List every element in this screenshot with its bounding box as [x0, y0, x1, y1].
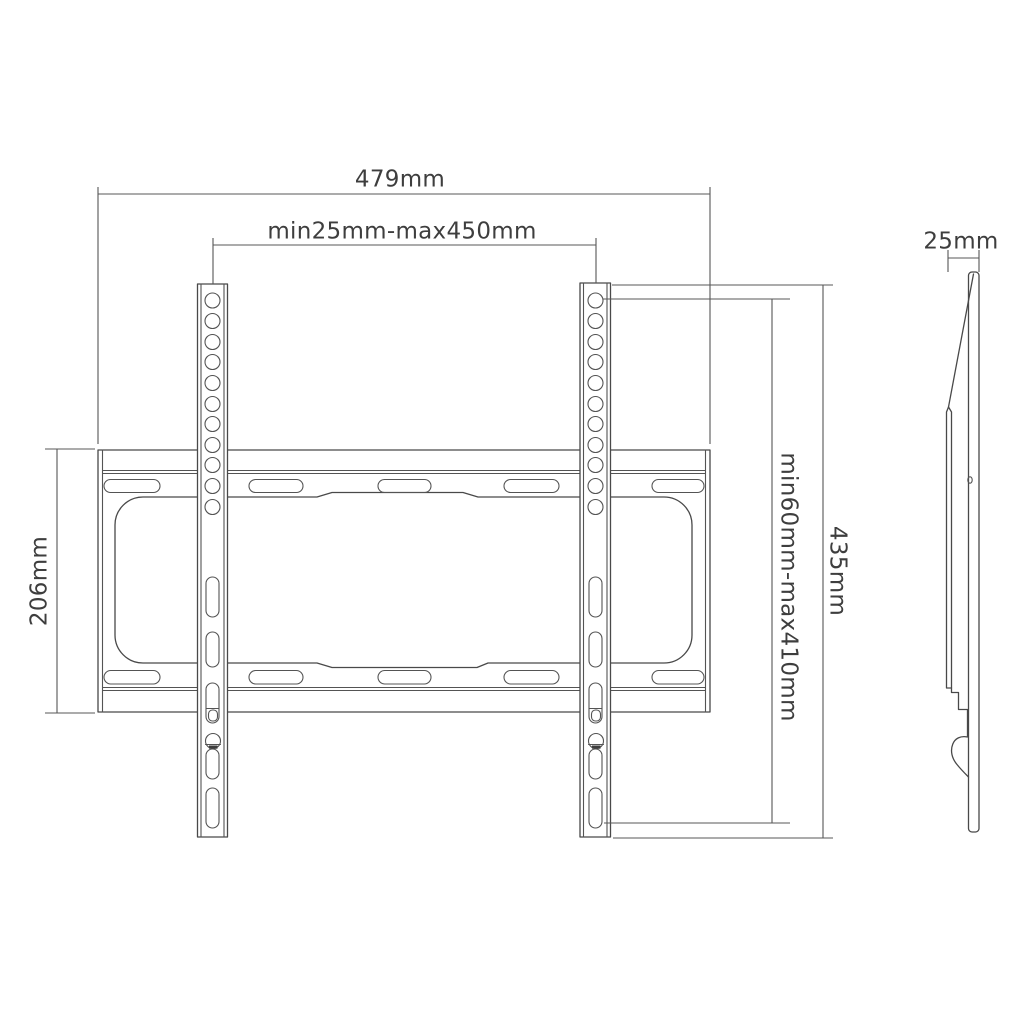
technical-drawing-canvas: 479mm min25mm-max450mm 206mm 435mm min60… — [0, 0, 1024, 1024]
wall-plate — [98, 450, 710, 712]
plate-height-dimension-label: 206mm — [29, 536, 52, 626]
vesa-rail-left — [198, 284, 228, 837]
rail-outline — [580, 283, 611, 837]
vesa-horizontal-range-label: min25mm-max450mm — [267, 221, 536, 244]
bracket-line-drawing — [0, 0, 1024, 1024]
bracket-height-dimension-label: 435mm — [826, 526, 849, 616]
front-view — [45, 187, 833, 838]
width-dimension-label: 479mm — [355, 169, 445, 192]
screw-thread-mark — [209, 746, 218, 749]
rail-outline — [198, 284, 228, 837]
vesa-vertical-range-label: min60mm-max410mm — [777, 452, 800, 721]
side-rail-profile — [969, 272, 980, 832]
screw-thread-mark — [592, 746, 601, 749]
vesa-rail-right — [580, 283, 611, 837]
side-view — [947, 250, 980, 832]
side-wall-plate-profile — [947, 407, 952, 688]
depth-dimension-label: 25mm — [923, 231, 998, 254]
wall-plate-outline — [98, 450, 710, 712]
side-bottom-lock-tab — [952, 688, 969, 777]
